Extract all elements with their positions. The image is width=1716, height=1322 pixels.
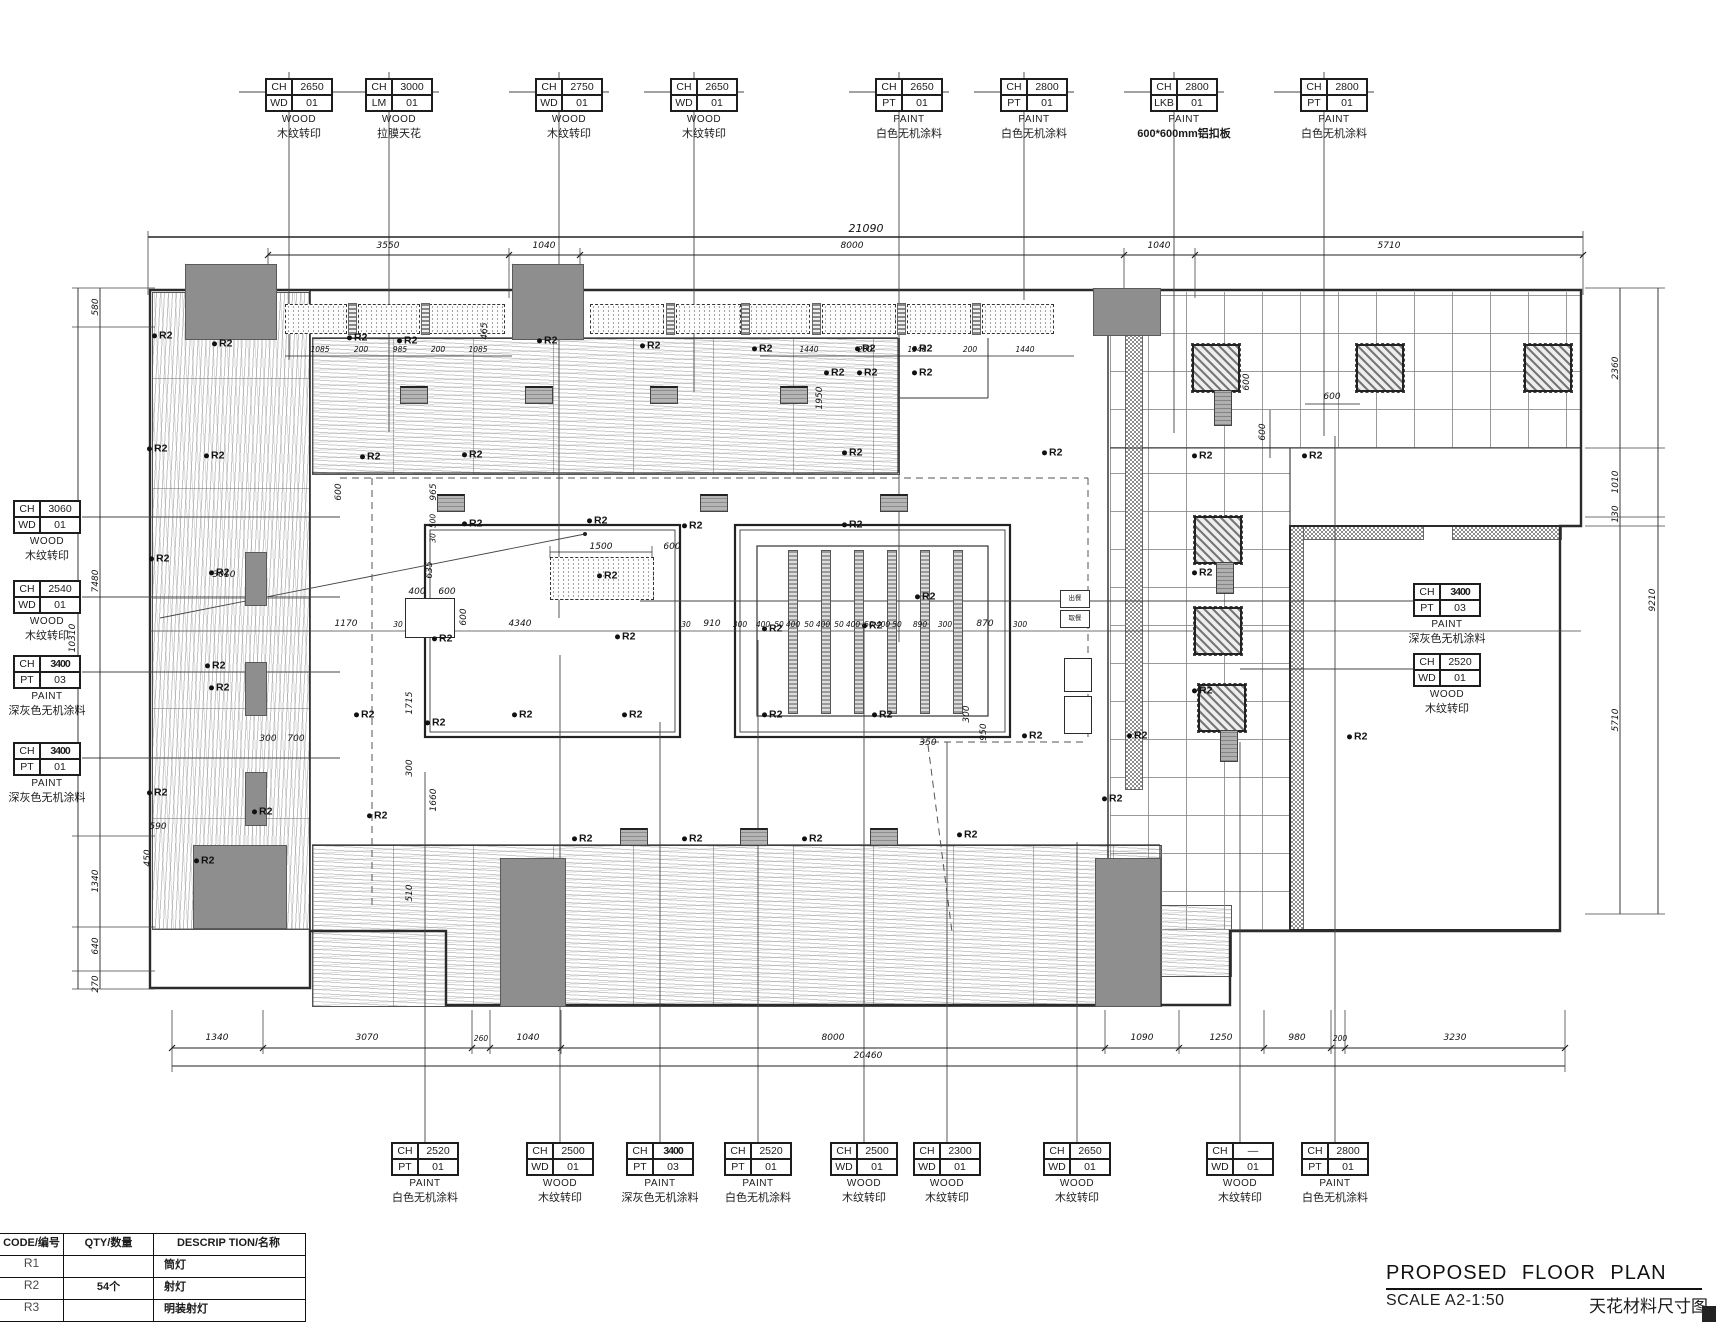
dim-label: 1500 bbox=[590, 542, 613, 552]
spotlight-marker-r2: R2 bbox=[872, 708, 892, 720]
spotlight-dot bbox=[1192, 688, 1197, 693]
dim-label: 270 bbox=[91, 975, 101, 992]
legend-code: R3 bbox=[0, 1300, 64, 1321]
spotlight-marker-r2: R2 bbox=[354, 708, 374, 720]
ceiling-vent bbox=[400, 386, 428, 404]
spotlight-dot bbox=[212, 341, 217, 346]
dim-label: 50 bbox=[834, 620, 844, 629]
column-block bbox=[500, 858, 566, 1007]
title-block: PROPOSED FLOOR PLAN SCALE A2-1:50 天花材料尺寸… bbox=[1386, 1262, 1716, 1317]
column-block bbox=[185, 264, 277, 340]
callout-bottom-2: CH2500WD01 WOOD木纹转印 bbox=[505, 1142, 615, 1205]
dim-label: 20460 bbox=[854, 1051, 883, 1061]
dim-label: 510 bbox=[405, 884, 415, 901]
dim-label: 8000 bbox=[822, 1033, 845, 1043]
spotlight-marker-r2: R2 bbox=[957, 828, 977, 840]
ceiling-vent bbox=[620, 828, 648, 846]
fixture-tab bbox=[1214, 390, 1232, 426]
spotlight-marker-r2: R2 bbox=[572, 832, 592, 844]
dim-label: 3550 bbox=[377, 241, 400, 251]
spotlight-dot bbox=[682, 836, 687, 841]
dim-label: 635 bbox=[425, 561, 435, 578]
dim-label: 590 bbox=[149, 822, 166, 832]
drawing-title: PROPOSED FLOOR PLAN bbox=[1386, 1262, 1716, 1285]
dim-label: 1085 bbox=[310, 345, 329, 354]
spotlight-dot bbox=[347, 335, 352, 340]
spotlight-marker-r2: R2 bbox=[762, 622, 782, 634]
spotlight-dot bbox=[915, 594, 920, 599]
dim-label: 1340 bbox=[206, 1033, 229, 1043]
drawing-caption: 天花材料尺寸图 bbox=[1589, 1292, 1708, 1317]
spotlight-dot bbox=[1347, 734, 1352, 739]
spotlight-marker-r2: R2 bbox=[824, 366, 844, 378]
dim-label: 600 bbox=[663, 542, 680, 552]
dim-label: 600 bbox=[334, 483, 344, 500]
spotlight-marker-r2: R2 bbox=[397, 334, 417, 346]
dim-label: 465 bbox=[480, 322, 490, 339]
dim-label: 2360 bbox=[1611, 357, 1621, 380]
kitchen-fixture bbox=[1192, 344, 1240, 392]
spotlight-marker-r2: R2 bbox=[1042, 446, 1062, 458]
dim-label: 910 bbox=[703, 619, 720, 629]
spotlight-marker-r2: R2 bbox=[347, 331, 367, 343]
lightbox-separator bbox=[421, 303, 430, 335]
spotlight-dot bbox=[597, 573, 602, 578]
dim-label: 3230 bbox=[1444, 1033, 1467, 1043]
spotlight-dot bbox=[360, 454, 365, 459]
spotlight-marker-r2: R2 bbox=[1302, 449, 1322, 461]
callout-left-2: CH2540WD01 WOOD木纹转印 bbox=[0, 580, 102, 643]
dim-label: 600 bbox=[1242, 373, 1252, 390]
callout-left-3: CH3400PT03 PAINT深灰色无机涂料 bbox=[0, 655, 102, 718]
spotlight-marker-r2: R2 bbox=[912, 366, 932, 378]
dim-label: 500 bbox=[429, 514, 438, 528]
spotlight-marker-r2: R2 bbox=[842, 518, 862, 530]
legend-code: R1 bbox=[0, 1256, 64, 1277]
spotlight-marker-r2: R2 bbox=[615, 630, 635, 642]
legend-row-r2: R2 54个 射灯 bbox=[0, 1278, 305, 1300]
dim-label: 400 bbox=[786, 620, 800, 629]
lightbox-separator bbox=[666, 303, 675, 335]
spotlight-marker-r2: R2 bbox=[622, 708, 642, 720]
spotlight-marker-r2: R2 bbox=[425, 716, 445, 728]
callout-left-4: CH3400PT01 PAINT深灰色无机涂料 bbox=[0, 742, 102, 805]
callout-top-7: CH2800LKB01 PAINT600*600mm铝扣板 bbox=[1129, 78, 1239, 141]
ceiling-lightbox bbox=[822, 304, 896, 334]
dim-label: 1170 bbox=[335, 619, 358, 629]
spotlight-dot bbox=[512, 712, 517, 717]
spotlight-dot bbox=[855, 346, 860, 351]
callout-left-1: CH3060WD01 WOOD木纹转印 bbox=[0, 500, 102, 563]
dim-label: 965 bbox=[429, 483, 439, 500]
spotlight-dot bbox=[872, 712, 877, 717]
spotlight-dot bbox=[209, 685, 214, 690]
dim-label: 300 bbox=[405, 759, 415, 776]
spotlight-dot bbox=[367, 813, 372, 818]
legend-qty: 54个 bbox=[64, 1278, 154, 1299]
spotlight-marker-r2: R2 bbox=[915, 590, 935, 602]
spotlight-marker-r2: R2 bbox=[462, 448, 482, 460]
ceiling-vent bbox=[870, 828, 898, 846]
lightbox-separator bbox=[812, 303, 821, 335]
spotlight-dot bbox=[957, 832, 962, 837]
spotlight-marker-r2: R2 bbox=[1127, 729, 1147, 741]
dim-label: 5710 bbox=[1611, 709, 1621, 732]
spotlight-dot bbox=[354, 712, 359, 717]
dim-label: 1090 bbox=[1131, 1033, 1154, 1043]
dim-label: 1010 bbox=[1611, 471, 1621, 494]
legend-desc: 筒灯 bbox=[154, 1256, 303, 1277]
spotlight-dot bbox=[912, 346, 917, 351]
callout-top-2: CH3000LM01 WOOD拉膜天花 bbox=[344, 78, 454, 141]
spotlight-dot bbox=[152, 333, 157, 338]
dim-label: 30 bbox=[393, 620, 403, 629]
legend-row-r3: R3 明装射灯 bbox=[0, 1300, 305, 1321]
dim-label: 1040 bbox=[533, 241, 556, 251]
lightbox-separator bbox=[972, 303, 981, 335]
dim-label: 50 bbox=[804, 620, 814, 629]
spotlight-dot bbox=[752, 346, 757, 351]
spotlight-dot bbox=[209, 570, 214, 575]
spotlight-dot bbox=[194, 858, 199, 863]
wall-nib bbox=[245, 662, 267, 716]
legend-qty bbox=[64, 1256, 154, 1277]
spotlight-marker-r2: R2 bbox=[1192, 449, 1212, 461]
legend-qty bbox=[64, 1300, 154, 1321]
kitchen-fixture bbox=[1356, 344, 1404, 392]
callout-right-2: CH2520WD01 WOOD木纹转印 bbox=[1392, 653, 1502, 716]
legend-header-qty: QTY/数量 bbox=[64, 1234, 154, 1255]
spotlight-marker-r2: R2 bbox=[147, 442, 167, 454]
callout-bottom-3: CH3400PT03 PAINT深灰色无机涂料 bbox=[605, 1142, 715, 1205]
spotlight-marker-r2: R2 bbox=[367, 809, 387, 821]
dim-label: 4340 bbox=[509, 619, 532, 629]
ceiling-vent bbox=[880, 494, 908, 512]
callout-top-6: CH2800PT01 PAINT白色无机涂料 bbox=[979, 78, 1089, 141]
spotlight-dot bbox=[537, 338, 542, 343]
legend-desc: 明装射灯 bbox=[154, 1300, 303, 1321]
callout-top-3: CH2750WD01 WOOD木纹转印 bbox=[514, 78, 624, 141]
spotlight-marker-r2: R2 bbox=[682, 832, 702, 844]
dim-label: 300 bbox=[259, 734, 276, 744]
ceiling-lightbox bbox=[358, 304, 420, 334]
column-block bbox=[1093, 288, 1161, 336]
callout-bottom-1: CH2520PT01 PAINT白色无机涂料 bbox=[370, 1142, 480, 1205]
spotlight-marker-r2: R2 bbox=[252, 805, 272, 817]
ceiling-vent bbox=[650, 386, 678, 404]
dim-label: 400 bbox=[846, 620, 860, 629]
spotlight-marker-r2: R2 bbox=[597, 569, 617, 581]
spotlight-dot bbox=[432, 636, 437, 641]
spotlight-dot bbox=[1102, 796, 1107, 801]
ceiling-vent bbox=[437, 494, 465, 512]
dim-label: 9210 bbox=[1648, 589, 1658, 612]
dim-label: 600 bbox=[1323, 392, 1340, 402]
dim-label: 600 bbox=[459, 608, 469, 625]
dim-label: 5710 bbox=[1378, 241, 1401, 251]
callout-bottom-7: CH2650WD01 WOOD木纹转印 bbox=[1022, 1142, 1132, 1205]
spotlight-dot bbox=[1127, 733, 1132, 738]
lightbox-separator bbox=[897, 303, 906, 335]
dim-label: 1040 bbox=[1148, 241, 1171, 251]
legend-code: R2 bbox=[0, 1278, 64, 1299]
callout-bottom-9: CH2800PT01 PAINT白色无机涂料 bbox=[1280, 1142, 1390, 1205]
wall-nib bbox=[245, 772, 267, 826]
dim-label: 8000 bbox=[841, 241, 864, 251]
callout-top-5: CH2650PT01 PAINT白色无机涂料 bbox=[854, 78, 964, 141]
title-rule bbox=[1386, 1288, 1702, 1290]
dim-label: 1250 bbox=[1210, 1033, 1233, 1043]
sheet-corner-mark bbox=[1702, 1306, 1716, 1322]
ceiling-vent bbox=[780, 386, 808, 404]
ceiling-baffle bbox=[854, 550, 864, 714]
spotlight-marker-r2: R2 bbox=[152, 329, 172, 341]
fixture-tab bbox=[1216, 562, 1234, 594]
dim-label: 200 bbox=[1333, 1034, 1347, 1043]
ceiling-lightbox bbox=[429, 304, 505, 334]
legend-header-code: CODE/编号 bbox=[0, 1234, 64, 1255]
dim-label: 30 bbox=[429, 533, 438, 543]
ceiling-vent bbox=[525, 386, 553, 404]
ceiling-vent bbox=[740, 828, 768, 846]
spotlight-dot bbox=[462, 521, 467, 526]
spotlight-dot bbox=[147, 790, 152, 795]
fixture-tab bbox=[1220, 730, 1238, 762]
spotlight-marker-r2: R2 bbox=[587, 514, 607, 526]
spotlight-marker-r2: R2 bbox=[862, 619, 882, 631]
dim-label: 600 bbox=[1258, 423, 1268, 440]
serve-hatch-label: 出餐 bbox=[1060, 590, 1090, 608]
spotlight-marker-r2: R2 bbox=[147, 786, 167, 798]
ceiling-baffle bbox=[887, 550, 897, 714]
dim-label: 300 bbox=[733, 620, 747, 629]
spotlight-marker-r2: R2 bbox=[209, 566, 229, 578]
kitchen-fixture bbox=[1194, 607, 1242, 655]
dim-label: 300 bbox=[1013, 620, 1027, 629]
dim-label: 130 bbox=[1611, 505, 1621, 522]
drawing-scale: SCALE A2-1:50 bbox=[1386, 1292, 1505, 1317]
ceiling-lightbox bbox=[748, 304, 810, 334]
spotlight-marker-r2: R2 bbox=[1192, 566, 1212, 578]
spotlight-marker-r2: R2 bbox=[640, 339, 660, 351]
spotlight-dot bbox=[205, 663, 210, 668]
column-block bbox=[1095, 858, 1161, 1007]
ceiling-baffle bbox=[953, 550, 963, 714]
spotlight-marker-r2: R2 bbox=[857, 366, 877, 378]
spotlight-dot bbox=[762, 712, 767, 717]
lightbox-separator bbox=[741, 303, 750, 335]
legend-header-desc: DESCRIP TION/名称 bbox=[154, 1234, 303, 1255]
spotlight-marker-r2: R2 bbox=[149, 552, 169, 564]
kitchen-fixture bbox=[1194, 516, 1242, 564]
callout-top-1: CH2650WD01 WOOD木纹转印 bbox=[244, 78, 354, 141]
spotlight-dot bbox=[842, 450, 847, 455]
spotlight-marker-r2: R2 bbox=[432, 632, 452, 644]
spotlight-dot bbox=[857, 370, 862, 375]
spotlight-marker-r2: R2 bbox=[1102, 792, 1122, 804]
equipment-box bbox=[1064, 658, 1092, 692]
spotlight-marker-r2: R2 bbox=[912, 342, 932, 354]
dim-label: 1340 bbox=[91, 870, 101, 893]
spotlight-marker-r2: R2 bbox=[212, 337, 232, 349]
dim-label: 450 bbox=[143, 849, 153, 866]
dim-label: 30 bbox=[681, 620, 691, 629]
spotlight-marker-r2: R2 bbox=[1192, 684, 1212, 696]
spotlight-dot bbox=[615, 634, 620, 639]
dim-label: 3070 bbox=[356, 1033, 379, 1043]
dim-label: 400 bbox=[408, 587, 425, 597]
dim-label: 350 bbox=[919, 738, 936, 748]
spotlight-marker-r2: R2 bbox=[682, 519, 702, 531]
ceiling-lightbox bbox=[285, 304, 347, 334]
legend-desc: 射灯 bbox=[154, 1278, 303, 1299]
spotlight-dot bbox=[587, 518, 592, 523]
ceiling-lightbox bbox=[982, 304, 1054, 334]
spotlight-dot bbox=[1302, 453, 1307, 458]
dim-label: 700 bbox=[287, 734, 304, 744]
dim-label: 1440 bbox=[799, 345, 818, 354]
dim-label: 1660 bbox=[429, 789, 439, 812]
spotlight-marker-r2: R2 bbox=[537, 334, 557, 346]
spotlight-marker-r2: R2 bbox=[855, 342, 875, 354]
spotlight-dot bbox=[425, 720, 430, 725]
spotlight-dot bbox=[762, 626, 767, 631]
dim-label: 400 bbox=[816, 620, 830, 629]
spotlight-dot bbox=[572, 836, 577, 841]
spotlight-dot bbox=[252, 809, 257, 814]
dim-label: 260 bbox=[474, 1034, 488, 1043]
spotlight-marker-r2: R2 bbox=[205, 659, 225, 671]
callout-bottom-4: CH2520PT01 PAINT白色无机涂料 bbox=[703, 1142, 813, 1205]
spotlight-dot bbox=[682, 523, 687, 528]
equipment-box bbox=[1064, 696, 1092, 734]
dim-label: 1040 bbox=[517, 1033, 540, 1043]
spotlight-dot bbox=[147, 446, 152, 451]
spotlight-marker-r2: R2 bbox=[204, 449, 224, 461]
ceiling-baffle bbox=[920, 550, 930, 714]
spotlight-marker-r2: R2 bbox=[752, 342, 772, 354]
dim-label: 950 bbox=[979, 723, 989, 740]
spotlight-marker-r2: R2 bbox=[1022, 729, 1042, 741]
spotlight-dot bbox=[1042, 450, 1047, 455]
dim-label: 200 bbox=[431, 345, 445, 354]
callout-right-1: CH3400PT03 PAINT深灰色无机涂料 bbox=[1392, 583, 1502, 646]
column-block bbox=[512, 264, 584, 340]
spotlight-marker-r2: R2 bbox=[802, 832, 822, 844]
legend-row-r1: R1 筒灯 bbox=[0, 1256, 305, 1278]
callout-bottom-8: CH—WD01 WOOD木纹转印 bbox=[1185, 1142, 1295, 1205]
callout-bottom-6: CH2300WD01 WOOD木纹转印 bbox=[892, 1142, 1002, 1205]
floor-plan-drawing: 出餐 取餐 21090 3550 1040 8000 1040 5710 134… bbox=[0, 0, 1716, 1322]
lightbox-separator bbox=[348, 303, 357, 335]
dim-label: 980 bbox=[1288, 1033, 1305, 1043]
spotlight-marker-r2: R2 bbox=[512, 708, 532, 720]
spotlight-dot bbox=[824, 370, 829, 375]
pickup-hatch-label: 取餐 bbox=[1060, 610, 1090, 628]
dim-label: 1085 bbox=[468, 345, 487, 354]
dim-label: 640 bbox=[91, 937, 101, 954]
spotlight-dot bbox=[862, 623, 867, 628]
dim-label: 50 bbox=[892, 620, 902, 629]
dim-label: 21090 bbox=[849, 222, 884, 235]
spotl ight-dot bbox=[1192, 570, 1197, 575]
dim-label: 890 bbox=[913, 620, 927, 629]
spotlight-marker-r2: R2 bbox=[1347, 730, 1367, 742]
ceiling-baffle bbox=[788, 550, 798, 714]
spotlight-dot bbox=[462, 452, 467, 457]
wall-nib bbox=[245, 552, 267, 606]
dim-label: 1950 bbox=[815, 387, 825, 410]
spotlight-dot bbox=[622, 712, 627, 717]
ceiling-vent bbox=[700, 494, 728, 512]
spotlight-marker-r2: R2 bbox=[194, 854, 214, 866]
callout-top-4: CH2650WD01 WOOD木纹转印 bbox=[649, 78, 759, 141]
kitchen-fixture bbox=[1524, 344, 1572, 392]
lighting-legend-table: CODE/编号 QTY/数量 DESCRIP TION/名称 R1 筒灯 R2 … bbox=[0, 1233, 306, 1322]
dim-label: 200 bbox=[354, 345, 368, 354]
spotlight-marker-r2: R2 bbox=[462, 517, 482, 529]
dim-label: 1440 bbox=[1015, 345, 1034, 354]
spotlight-dot bbox=[1192, 453, 1197, 458]
dim-label: 870 bbox=[976, 619, 993, 629]
spotlight-marker-r2: R2 bbox=[842, 446, 862, 458]
dim-label: 300 bbox=[962, 705, 972, 722]
ceiling-lightbox bbox=[590, 304, 664, 334]
dim-label: 300 bbox=[938, 620, 952, 629]
spotlight-dot bbox=[842, 522, 847, 527]
spotlight-dot bbox=[802, 836, 807, 841]
ceiling-baffle bbox=[821, 550, 831, 714]
spotlight-dot bbox=[149, 556, 154, 561]
spotlight-marker-r2: R2 bbox=[762, 708, 782, 720]
spotlight-dot bbox=[912, 370, 917, 375]
ceiling-lightbox bbox=[676, 304, 741, 334]
ceiling-lightbox bbox=[907, 304, 971, 334]
spotlight-marker-r2: R2 bbox=[360, 450, 380, 462]
spotlight-dot bbox=[1022, 733, 1027, 738]
dim-label: 200 bbox=[963, 345, 977, 354]
spotlight-dot bbox=[640, 343, 645, 348]
spotlight-dot bbox=[204, 453, 209, 458]
spotlight-dot bbox=[397, 338, 402, 343]
dim-label: 600 bbox=[438, 587, 455, 597]
legend-header-row: CODE/编号 QTY/数量 DESCRIP TION/名称 bbox=[0, 1234, 305, 1256]
callout-top-8: CH2800PT01 PAINT白色无机涂料 bbox=[1279, 78, 1389, 141]
dim-label: 1715 bbox=[405, 692, 415, 715]
dim-label: 580 bbox=[91, 298, 101, 315]
spotlight-marker-r2: R2 bbox=[209, 681, 229, 693]
